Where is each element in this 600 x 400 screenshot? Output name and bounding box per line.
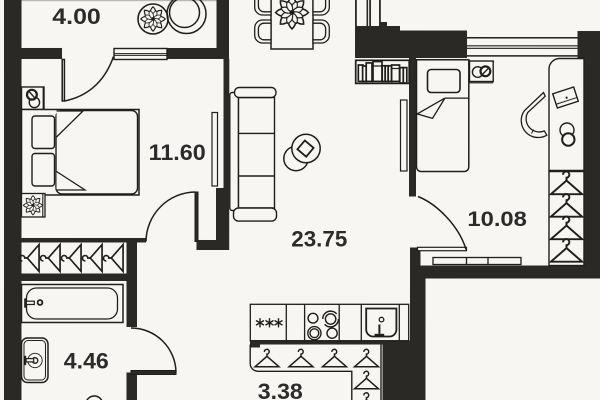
svg-text:4.00: 4.00 — [52, 4, 101, 29]
svg-text:11.60: 11.60 — [149, 140, 206, 165]
svg-text:10.08: 10.08 — [467, 207, 527, 231]
svg-text:23.75: 23.75 — [291, 227, 347, 252]
svg-text:4.46: 4.46 — [64, 348, 109, 373]
svg-text:3.38: 3.38 — [258, 379, 303, 400]
